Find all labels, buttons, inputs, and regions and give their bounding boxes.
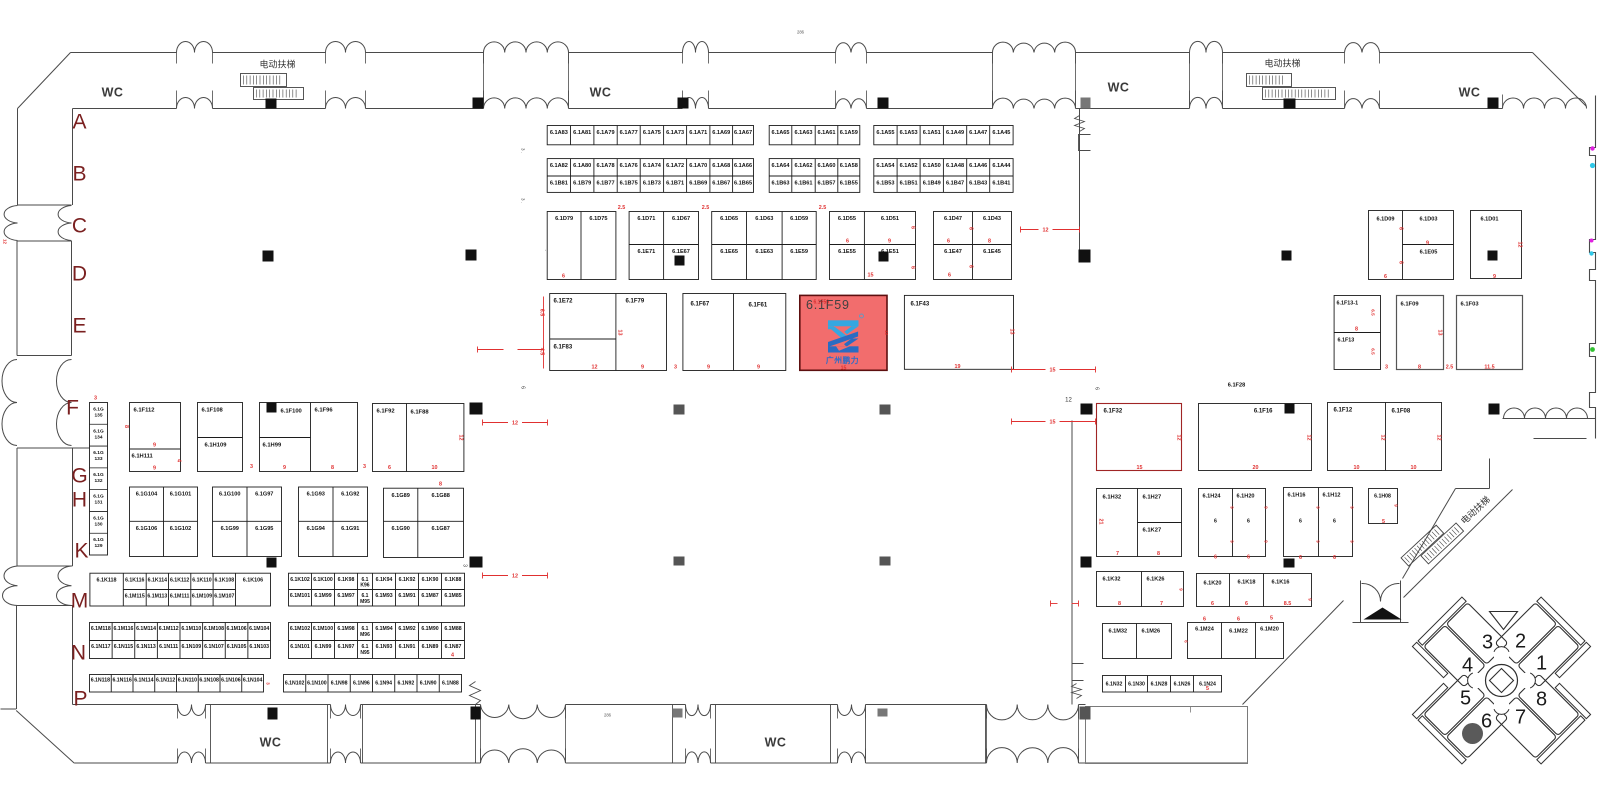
svg-text:6.1G91: 6.1G91 bbox=[341, 526, 359, 532]
svg-text:6.1D09: 6.1D09 bbox=[1376, 217, 1394, 223]
svg-text:N95: N95 bbox=[360, 650, 369, 656]
svg-text:6.1D51: 6.1D51 bbox=[881, 216, 899, 222]
svg-text:6: 6 bbox=[910, 226, 916, 229]
svg-text:12: 12 bbox=[512, 421, 518, 427]
svg-text:6.1F16: 6.1F16 bbox=[1254, 409, 1273, 415]
svg-text:2.5: 2.5 bbox=[819, 205, 827, 211]
svg-text:6.1N116: 6.1N116 bbox=[112, 678, 131, 684]
svg-text:6.1B75: 6.1B75 bbox=[620, 181, 638, 187]
svg-text:6.1M109: 6.1M109 bbox=[192, 594, 212, 600]
svg-text:3: 3 bbox=[462, 564, 468, 567]
svg-text:6.1K90: 6.1K90 bbox=[422, 577, 439, 583]
svg-text:6: 6 bbox=[1299, 555, 1302, 561]
svg-text:6.1E45: 6.1E45 bbox=[983, 249, 1001, 255]
svg-text:6.1A61: 6.1A61 bbox=[817, 130, 835, 136]
svg-text:6.1M110: 6.1M110 bbox=[181, 626, 201, 632]
svg-text:6.1N105: 6.1N105 bbox=[227, 644, 247, 650]
svg-text:6.1N107: 6.1N107 bbox=[204, 644, 224, 650]
svg-text:8: 8 bbox=[1536, 689, 1547, 711]
svg-text:6: 6 bbox=[1299, 519, 1302, 525]
svg-text:6.1A48: 6.1A48 bbox=[946, 163, 964, 169]
svg-text:6.1K98: 6.1K98 bbox=[338, 577, 355, 583]
svg-text:6.1M108: 6.1M108 bbox=[204, 626, 224, 632]
svg-text:6.1N99: 6.1N99 bbox=[315, 644, 332, 650]
svg-text:6.1N109: 6.1N109 bbox=[182, 644, 202, 650]
svg-text:6.1A64: 6.1A64 bbox=[771, 163, 790, 169]
svg-text:9: 9 bbox=[888, 239, 891, 245]
svg-text:6.1B47: 6.1B47 bbox=[946, 181, 964, 187]
svg-text:6.5: 6.5 bbox=[1371, 309, 1376, 316]
svg-text:F: F bbox=[66, 397, 79, 420]
svg-text:6.1M26: 6.1M26 bbox=[1142, 629, 1161, 635]
svg-text:11.5: 11.5 bbox=[1484, 365, 1494, 371]
svg-text:6.1N114: 6.1N114 bbox=[134, 678, 153, 684]
svg-text:6.1B51: 6.1B51 bbox=[900, 181, 918, 187]
svg-text:6.1N102: 6.1N102 bbox=[285, 681, 305, 687]
svg-text:M: M bbox=[71, 590, 89, 613]
svg-text:6.1A73: 6.1A73 bbox=[666, 130, 684, 136]
svg-text:135: 135 bbox=[94, 413, 102, 419]
svg-text:15: 15 bbox=[868, 273, 874, 279]
svg-text:6.1N112: 6.1N112 bbox=[156, 678, 175, 684]
svg-text:6.1G93: 6.1G93 bbox=[307, 492, 325, 498]
svg-text:2.5: 2.5 bbox=[618, 205, 626, 211]
svg-text:6.1N110: 6.1N110 bbox=[178, 678, 197, 684]
svg-text:6.1N108: 6.1N108 bbox=[199, 678, 219, 684]
svg-text:12: 12 bbox=[1306, 435, 1312, 441]
svg-text:8: 8 bbox=[439, 482, 442, 488]
svg-text:6.1F112: 6.1F112 bbox=[134, 408, 155, 414]
svg-text:6.1B61: 6.1B61 bbox=[794, 181, 812, 187]
svg-text:6.1B65: 6.1B65 bbox=[734, 181, 752, 187]
svg-text:6.1A45: 6.1A45 bbox=[992, 130, 1010, 136]
svg-text:6.1B81: 6.1B81 bbox=[550, 181, 568, 187]
svg-text:WC: WC bbox=[1459, 86, 1481, 100]
svg-text:12: 12 bbox=[1436, 435, 1442, 441]
svg-text:2.5: 2.5 bbox=[1446, 365, 1454, 371]
svg-text:6.1M20: 6.1M20 bbox=[1260, 627, 1279, 633]
svg-text:G: G bbox=[71, 465, 87, 488]
svg-text:3 .: 3 . bbox=[521, 198, 526, 203]
svg-text:6.1F09: 6.1F09 bbox=[1401, 302, 1420, 308]
svg-text:6.1A68: 6.1A68 bbox=[712, 163, 730, 169]
svg-text:6.1M94: 6.1M94 bbox=[375, 626, 392, 632]
svg-text:134: 134 bbox=[94, 434, 102, 440]
svg-text:6.1A79: 6.1A79 bbox=[597, 130, 615, 136]
svg-text:WC: WC bbox=[102, 86, 124, 100]
svg-text:6.1K100: 6.1K100 bbox=[313, 577, 333, 583]
svg-text:10: 10 bbox=[1411, 465, 1417, 471]
svg-text:6.1K116: 6.1K116 bbox=[125, 578, 144, 584]
svg-text:6.1M87: 6.1M87 bbox=[421, 593, 438, 599]
svg-text:6.1N28: 6.1N28 bbox=[1151, 682, 1168, 688]
svg-text:9: 9 bbox=[757, 365, 760, 371]
svg-text:6.1G88: 6.1G88 bbox=[431, 493, 449, 499]
svg-text:6.1D43: 6.1D43 bbox=[983, 216, 1001, 222]
svg-text:6.1B57: 6.1B57 bbox=[817, 181, 835, 187]
svg-text:6: 6 bbox=[1203, 617, 1206, 623]
svg-text:6.1F13: 6.1F13 bbox=[1338, 338, 1355, 344]
svg-text:6.1N115: 6.1N115 bbox=[114, 644, 133, 650]
svg-text:6.1B53: 6.1B53 bbox=[876, 181, 894, 187]
svg-text:6.1A62: 6.1A62 bbox=[794, 163, 812, 169]
svg-text:6.1G100: 6.1G100 bbox=[219, 492, 240, 498]
svg-text:6.1D01: 6.1D01 bbox=[1480, 217, 1498, 223]
svg-text:6.5: 6.5 bbox=[1371, 348, 1376, 355]
svg-text:6.1K27: 6.1K27 bbox=[1143, 528, 1162, 534]
svg-text:6: 6 bbox=[1245, 601, 1248, 607]
svg-text:6.1A69: 6.1A69 bbox=[712, 130, 730, 136]
svg-text:6.1B79: 6.1B79 bbox=[573, 181, 591, 187]
svg-text:6.1K18: 6.1K18 bbox=[1237, 580, 1255, 586]
svg-text:4: 4 bbox=[451, 653, 454, 659]
svg-text:6: 6 bbox=[388, 465, 391, 471]
svg-text:129: 129 bbox=[94, 543, 102, 549]
svg-text:6.1K92: 6.1K92 bbox=[399, 577, 416, 583]
svg-text:131: 131 bbox=[94, 500, 102, 506]
svg-text:6.1F59: 6.1F59 bbox=[814, 300, 830, 306]
svg-text:4.5: 4.5 bbox=[539, 348, 545, 356]
svg-text:6.1A74: 6.1A74 bbox=[643, 163, 662, 169]
svg-text:13: 13 bbox=[884, 330, 889, 335]
svg-text:6.1D79: 6.1D79 bbox=[555, 216, 573, 222]
svg-text:WC: WC bbox=[590, 86, 612, 100]
svg-text:6.1A49: 6.1A49 bbox=[946, 130, 964, 136]
svg-text:6.1F43: 6.1F43 bbox=[911, 302, 930, 308]
svg-text:6.1M101: 6.1M101 bbox=[290, 593, 310, 599]
svg-text:6.1G: 6.1G bbox=[93, 472, 104, 478]
svg-text:6.1K16: 6.1K16 bbox=[1271, 580, 1289, 586]
svg-text:6.1G: 6.1G bbox=[93, 428, 104, 434]
svg-text:6.1G102: 6.1G102 bbox=[170, 526, 191, 532]
svg-text:8: 8 bbox=[1418, 365, 1421, 371]
svg-text:4: 4 bbox=[1462, 655, 1473, 677]
svg-text:6.1G: 6.1G bbox=[93, 450, 104, 456]
svg-text:286: 286 bbox=[797, 30, 805, 35]
svg-text:9: 9 bbox=[1426, 241, 1429, 247]
svg-text:133: 133 bbox=[94, 456, 102, 462]
svg-text:6.1N118: 6.1N118 bbox=[91, 678, 110, 684]
svg-text:3: 3 bbox=[250, 464, 253, 470]
svg-text:M95: M95 bbox=[360, 599, 370, 605]
svg-text:6: 6 bbox=[968, 265, 974, 268]
svg-text:A: A bbox=[72, 111, 86, 134]
svg-text:6.1G: 6.1G bbox=[93, 537, 104, 543]
svg-text:15: 15 bbox=[841, 366, 847, 372]
svg-text:6.1K112: 6.1K112 bbox=[170, 578, 189, 584]
svg-text:6.1A75: 6.1A75 bbox=[643, 130, 661, 136]
svg-text:6.1H32: 6.1H32 bbox=[1103, 495, 1122, 501]
svg-text:6.1E65: 6.1E65 bbox=[720, 249, 738, 255]
svg-text:6.1M111: 6.1M111 bbox=[170, 594, 190, 600]
svg-text:6: 6 bbox=[520, 386, 526, 389]
svg-text:12: 12 bbox=[458, 435, 464, 441]
svg-text:6.1A70: 6.1A70 bbox=[689, 163, 707, 169]
svg-text:6.1M32: 6.1M32 bbox=[1109, 629, 1128, 635]
svg-text:6.1K108: 6.1K108 bbox=[214, 578, 234, 584]
svg-text:6.1E63: 6.1E63 bbox=[755, 249, 773, 255]
svg-text:C: C bbox=[72, 215, 87, 238]
svg-text:6.1A76: 6.1A76 bbox=[620, 163, 638, 169]
svg-text:6.1A77: 6.1A77 bbox=[620, 130, 638, 136]
svg-text:130: 130 bbox=[94, 521, 102, 527]
svg-text:6: 6 bbox=[910, 266, 916, 269]
svg-text:6.1E05: 6.1E05 bbox=[1420, 250, 1438, 256]
svg-text:12: 12 bbox=[512, 574, 518, 580]
svg-text:6.1N30: 6.1N30 bbox=[1128, 682, 1145, 688]
svg-text:6.1G99: 6.1G99 bbox=[221, 526, 239, 532]
svg-text:6.1A63: 6.1A63 bbox=[794, 130, 812, 136]
svg-text:6.1E72: 6.1E72 bbox=[554, 299, 574, 305]
svg-text:6.1F79: 6.1F79 bbox=[626, 299, 645, 305]
svg-text:K: K bbox=[74, 540, 88, 563]
svg-text:12: 12 bbox=[1065, 398, 1072, 404]
svg-text:6.1D71: 6.1D71 bbox=[637, 216, 655, 222]
svg-text:6.1K118: 6.1K118 bbox=[96, 578, 116, 584]
svg-text:6.1N91: 6.1N91 bbox=[399, 644, 416, 650]
svg-text:6.1M114: 6.1M114 bbox=[136, 626, 156, 632]
svg-text:6.1N26: 6.1N26 bbox=[1174, 682, 1191, 688]
svg-text:6.1E71: 6.1E71 bbox=[637, 249, 655, 255]
svg-text:6: 6 bbox=[947, 239, 950, 245]
svg-text:WC: WC bbox=[260, 736, 282, 750]
svg-text:6.1M116: 6.1M116 bbox=[113, 626, 133, 632]
svg-text:6.1F61: 6.1F61 bbox=[749, 303, 768, 309]
svg-text:6.1A65: 6.1A65 bbox=[771, 130, 789, 136]
svg-text:6.1H12: 6.1H12 bbox=[1323, 493, 1341, 499]
svg-text:12: 12 bbox=[1176, 435, 1182, 441]
svg-text:6.1H111: 6.1H111 bbox=[132, 454, 154, 460]
svg-text:6.1N117: 6.1N117 bbox=[91, 644, 110, 650]
svg-text:10: 10 bbox=[432, 465, 438, 471]
svg-text:6.1D47: 6.1D47 bbox=[944, 216, 962, 222]
svg-text:6.1M98: 6.1M98 bbox=[337, 626, 354, 632]
svg-text:6.1E47: 6.1E47 bbox=[944, 249, 962, 255]
svg-text:2: 2 bbox=[1515, 631, 1526, 653]
svg-text:6.1A59: 6.1A59 bbox=[840, 130, 858, 136]
svg-text:D: D bbox=[72, 263, 87, 286]
svg-text:6.1K32: 6.1K32 bbox=[1103, 577, 1121, 583]
svg-text:15: 15 bbox=[1137, 465, 1143, 471]
svg-text:6.1M24: 6.1M24 bbox=[1195, 627, 1215, 633]
svg-text:6.1F13-1: 6.1F13-1 bbox=[1337, 301, 1359, 307]
svg-text:P: P bbox=[73, 688, 87, 711]
svg-text:6.1K102: 6.1K102 bbox=[290, 577, 310, 583]
svg-text:6.1G92: 6.1G92 bbox=[341, 492, 359, 498]
svg-text:6.1H109: 6.1H109 bbox=[205, 443, 228, 449]
svg-text:WC: WC bbox=[1108, 81, 1130, 95]
svg-text:6.1A54: 6.1A54 bbox=[876, 163, 895, 169]
svg-text:6.1A44: 6.1A44 bbox=[992, 163, 1011, 169]
svg-text:6.1F96: 6.1F96 bbox=[315, 408, 334, 414]
svg-text:8: 8 bbox=[1355, 327, 1358, 333]
svg-text:6.1F28: 6.1F28 bbox=[1228, 383, 1245, 389]
svg-text:6.1M91: 6.1M91 bbox=[398, 593, 415, 599]
svg-text:6.1N111: 6.1N111 bbox=[159, 644, 178, 650]
svg-text:K96: K96 bbox=[360, 583, 369, 589]
svg-text:WC: WC bbox=[765, 736, 787, 750]
svg-text:5: 5 bbox=[1206, 686, 1209, 692]
svg-text:6.1B49: 6.1B49 bbox=[923, 181, 941, 187]
svg-text:6.1N89: 6.1N89 bbox=[422, 644, 439, 650]
svg-text:8: 8 bbox=[123, 425, 129, 428]
svg-text:广州鹏力: 广州鹏力 bbox=[826, 355, 859, 365]
svg-text:6.1M104: 6.1M104 bbox=[249, 626, 269, 632]
svg-text:15: 15 bbox=[1050, 420, 1056, 426]
svg-text:6.1F108: 6.1F108 bbox=[202, 408, 224, 414]
svg-text:6.1M97: 6.1M97 bbox=[337, 593, 354, 599]
svg-text:132: 132 bbox=[94, 478, 102, 484]
svg-text:6.1N98: 6.1N98 bbox=[331, 681, 348, 687]
svg-text:6.1G: 6.1G bbox=[93, 407, 104, 413]
svg-text:6.1B77: 6.1B77 bbox=[597, 181, 615, 187]
svg-text:6.1G90: 6.1G90 bbox=[391, 526, 409, 532]
svg-text:3: 3 bbox=[94, 396, 97, 402]
svg-text:6: 6 bbox=[1247, 519, 1250, 525]
svg-text:6.1A72: 6.1A72 bbox=[666, 163, 684, 169]
svg-text:6.5: 6.5 bbox=[539, 309, 545, 317]
svg-text:6: 6 bbox=[1237, 617, 1240, 623]
svg-text:6.1D67: 6.1D67 bbox=[672, 216, 690, 222]
svg-text:6.1A82: 6.1A82 bbox=[550, 163, 568, 169]
svg-text:12: 12 bbox=[1043, 228, 1049, 234]
svg-text:6.1E67: 6.1E67 bbox=[672, 249, 690, 255]
svg-text:4: 4 bbox=[176, 459, 182, 462]
svg-text:电动扶梯: 电动扶梯 bbox=[1264, 58, 1300, 69]
svg-text:6.1M112: 6.1M112 bbox=[159, 626, 179, 632]
svg-text:5: 5 bbox=[1460, 688, 1471, 710]
svg-text:6.1F100: 6.1F100 bbox=[281, 409, 302, 415]
svg-text:E: E bbox=[72, 315, 86, 338]
svg-text:9: 9 bbox=[707, 365, 710, 371]
svg-text:6.1D75: 6.1D75 bbox=[589, 216, 607, 222]
svg-text:6.1N113: 6.1N113 bbox=[136, 644, 155, 650]
svg-text:3: 3 bbox=[1385, 365, 1388, 371]
svg-text:6: 6 bbox=[948, 273, 951, 279]
svg-text:6.1F92: 6.1F92 bbox=[377, 409, 395, 415]
svg-text:6.1A81: 6.1A81 bbox=[573, 130, 591, 136]
svg-text:3 .: 3 . bbox=[521, 148, 526, 153]
svg-text:6.1D65: 6.1D65 bbox=[720, 216, 738, 222]
svg-text:6: 6 bbox=[1094, 387, 1100, 390]
svg-text:6: 6 bbox=[1333, 555, 1336, 561]
svg-text:6.1H20: 6.1H20 bbox=[1237, 494, 1255, 500]
svg-text:6.1N32: 6.1N32 bbox=[1106, 682, 1123, 688]
svg-text:6.1K110: 6.1K110 bbox=[192, 578, 211, 584]
svg-text:6: 6 bbox=[1214, 519, 1217, 525]
svg-text:13: 13 bbox=[1437, 330, 1443, 336]
svg-text:6.1A46: 6.1A46 bbox=[969, 163, 987, 169]
svg-text:9: 9 bbox=[1493, 274, 1496, 280]
svg-text:6.1M99: 6.1M99 bbox=[314, 593, 331, 599]
svg-text:6.1A66: 6.1A66 bbox=[734, 163, 752, 169]
svg-text:6.1N104: 6.1N104 bbox=[243, 678, 263, 684]
svg-text:6.1A52: 6.1A52 bbox=[900, 163, 918, 169]
svg-text:6.1N93: 6.1N93 bbox=[376, 644, 393, 650]
svg-text:6.1A80: 6.1A80 bbox=[573, 163, 591, 169]
svg-text:6.1A58: 6.1A58 bbox=[840, 163, 858, 169]
svg-text:6.1G101: 6.1G101 bbox=[170, 492, 191, 498]
svg-text:8: 8 bbox=[988, 239, 991, 245]
svg-text:9: 9 bbox=[641, 365, 644, 371]
svg-text:6.1E51: 6.1E51 bbox=[881, 249, 899, 255]
svg-text:6.1N92: 6.1N92 bbox=[398, 681, 415, 687]
svg-text:7: 7 bbox=[1116, 551, 1119, 557]
svg-text:6.1A55: 6.1A55 bbox=[876, 130, 894, 136]
svg-text:9: 9 bbox=[153, 443, 156, 449]
svg-text:6.1F08: 6.1F08 bbox=[1392, 409, 1411, 415]
svg-text:6.1K106: 6.1K106 bbox=[243, 578, 263, 584]
svg-text:6.1M118: 6.1M118 bbox=[91, 626, 111, 632]
svg-text:M96: M96 bbox=[360, 632, 370, 638]
svg-text:6.1F12: 6.1F12 bbox=[1334, 408, 1353, 414]
svg-text:6.1B73: 6.1B73 bbox=[643, 181, 661, 187]
svg-text:6.1B63: 6.1B63 bbox=[771, 181, 789, 187]
svg-text:6.1A51: 6.1A51 bbox=[923, 130, 941, 136]
svg-text:6.1K114: 6.1K114 bbox=[148, 578, 167, 584]
svg-text:6: 6 bbox=[1398, 227, 1404, 230]
svg-text:12: 12 bbox=[592, 365, 598, 371]
svg-text:6.1B43: 6.1B43 bbox=[969, 181, 987, 187]
svg-text:6.1N101: 6.1N101 bbox=[290, 644, 310, 650]
svg-text:6.1N106: 6.1N106 bbox=[221, 678, 241, 684]
svg-text:6.1K94: 6.1K94 bbox=[376, 577, 393, 583]
svg-text:19: 19 bbox=[955, 364, 961, 370]
svg-text:6.1N100: 6.1N100 bbox=[307, 681, 327, 687]
svg-text:8: 8 bbox=[331, 465, 334, 471]
svg-text:6.1M113: 6.1M113 bbox=[147, 594, 167, 600]
svg-text:6.1A50: 6.1A50 bbox=[923, 163, 941, 169]
svg-text:6.1D63: 6.1D63 bbox=[755, 216, 773, 222]
svg-text:6: 6 bbox=[1333, 519, 1336, 525]
svg-text:9: 9 bbox=[283, 465, 286, 471]
svg-text:6.1A53: 6.1A53 bbox=[900, 130, 918, 136]
svg-text:6.1A60: 6.1A60 bbox=[817, 163, 835, 169]
svg-text:6.1H99: 6.1H99 bbox=[263, 443, 282, 449]
svg-text:6.1G: 6.1G bbox=[93, 515, 104, 521]
svg-text:6.1M102: 6.1M102 bbox=[290, 626, 310, 632]
svg-text:6.1B71: 6.1B71 bbox=[666, 181, 684, 187]
svg-text:6: 6 bbox=[1384, 274, 1387, 280]
svg-text:6.1H24: 6.1H24 bbox=[1203, 494, 1222, 500]
svg-text:6.1G104: 6.1G104 bbox=[136, 492, 158, 498]
svg-text:6.1B67: 6.1B67 bbox=[712, 181, 730, 187]
svg-text:6.1M92: 6.1M92 bbox=[398, 626, 415, 632]
svg-text:3: 3 bbox=[363, 464, 366, 470]
svg-text:6: 6 bbox=[562, 274, 565, 280]
svg-text:6.1G106: 6.1G106 bbox=[136, 526, 157, 532]
svg-text:286: 286 bbox=[604, 713, 612, 718]
svg-text:6.1M22: 6.1M22 bbox=[1229, 629, 1248, 635]
svg-text:6.1B69: 6.1B69 bbox=[689, 181, 707, 187]
svg-text:6.1F88: 6.1F88 bbox=[411, 410, 430, 416]
svg-text:7: 7 bbox=[1515, 707, 1526, 729]
svg-text:12: 12 bbox=[1517, 242, 1523, 248]
svg-text:B: B bbox=[72, 163, 86, 186]
svg-text:12: 12 bbox=[3, 239, 8, 244]
svg-text:6.1G97: 6.1G97 bbox=[255, 492, 273, 498]
svg-text:6.1M90: 6.1M90 bbox=[421, 626, 438, 632]
svg-text:6.1N96: 6.1N96 bbox=[353, 681, 370, 687]
svg-text:6.1G95: 6.1G95 bbox=[255, 526, 273, 532]
svg-text:6.1M106: 6.1M106 bbox=[226, 626, 246, 632]
svg-text:6.1N87: 6.1N87 bbox=[445, 644, 462, 650]
svg-text:13: 13 bbox=[1009, 329, 1015, 335]
svg-text:6.1B41: 6.1B41 bbox=[992, 181, 1010, 187]
svg-text:1: 1 bbox=[1536, 653, 1547, 675]
svg-text:6.1A78: 6.1A78 bbox=[597, 163, 615, 169]
svg-text:6: 6 bbox=[846, 239, 849, 245]
